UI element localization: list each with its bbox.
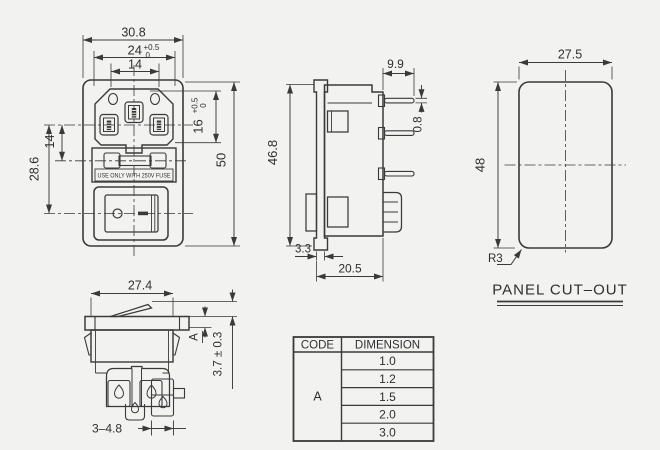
table-value-cell: 1.0: [379, 354, 396, 368]
svg-text:0: 0: [146, 51, 151, 60]
side-view: 46.8 9.9 0.8 3.3 20.5: [265, 57, 427, 282]
table-value-cell: 2.0: [379, 408, 396, 422]
dim-side-depth: 20.5: [317, 238, 384, 282]
cutout-title: PANEL CUT–OUT: [492, 282, 628, 306]
table-header-code: CODE: [301, 340, 335, 352]
switch-body-side: [328, 197, 349, 227]
svg-text:48: 48: [473, 158, 488, 172]
svg-text:R3: R3: [488, 253, 503, 265]
side-terminal-tab: [174, 389, 185, 399]
dim-switch-terminal: 3–4.8: [92, 421, 186, 436]
svg-text:50: 50: [214, 153, 229, 167]
fuse-warning-text: USE ONLY WITH 250V FUSE: [98, 173, 171, 180]
svg-text:14: 14: [128, 58, 142, 72]
panel-cutout-view: 27.5 48 R3 PANEL CUT–OUT: [473, 48, 628, 306]
svg-text:24: 24: [128, 43, 142, 58]
spec-table: CODE DIMENSION A 1.0 1.2 1.5 2.0 3.0: [294, 337, 434, 441]
technical-drawing-sheet: USE ONLY WITH 250V FUSE 30.8 24 +0.5 0: [0, 0, 660, 450]
front-view: USE ONLY WITH 250V FUSE 30.8 24 +0.5 0: [28, 26, 241, 258]
rear-terminal-block: [383, 193, 402, 233]
side-view-body: [325, 85, 384, 236]
svg-text:20.5: 20.5: [338, 262, 362, 276]
svg-text:14: 14: [43, 135, 57, 149]
rocker-actuator: [111, 305, 152, 317]
dim-side-height: 46.8: [265, 85, 314, 247]
table-value-cell: 1.2: [379, 372, 396, 386]
dim-side-pin-thickness: 0.8: [413, 85, 428, 133]
corner-radius-callout: R3: [488, 250, 522, 266]
svg-text:28.6: 28.6: [28, 157, 42, 181]
table-value-cell: 3.0: [379, 425, 396, 439]
dim-side-pin-length: 9.9: [383, 57, 414, 96]
svg-text:PANEL CUT–OUT: PANEL CUT–OUT: [492, 282, 628, 299]
switch-bezel-side: [306, 194, 317, 231]
switch-on-mark: [138, 212, 148, 216]
switch-bezel: [85, 317, 189, 331]
mounting-latch: [173, 333, 180, 355]
svg-text:0: 0: [199, 103, 208, 108]
drawing-canvas: USE ONLY WITH 250V FUSE 30.8 24 +0.5 0: [0, 0, 660, 450]
line-pin: [100, 115, 118, 136]
svg-text:3.3: 3.3: [295, 244, 311, 256]
ground-pin: [125, 102, 143, 123]
svg-text:3.7 ± 0.3: 3.7 ± 0.3: [213, 332, 225, 377]
terminal-pin: [385, 131, 415, 136]
svg-text:27.5: 27.5: [558, 48, 582, 62]
dim-switch-code-a: A: [189, 307, 212, 344]
svg-text:27.4: 27.4: [128, 279, 152, 293]
dim-front-pin-pitch: 14: [111, 58, 159, 88]
svg-text:A: A: [189, 333, 201, 341]
terminal-pin: [385, 98, 415, 103]
fuse-drawer-side: [328, 111, 349, 132]
switch-view: 27.4 A 3.7 ± 0.3 3–4.8: [85, 279, 238, 436]
svg-text:0.8: 0.8: [413, 117, 425, 133]
switch-housing: [91, 330, 173, 362]
table-code-cell: A: [313, 390, 322, 404]
terminal-hole: [132, 403, 139, 413]
table-header-dimension: DIMENSION: [355, 340, 420, 352]
svg-text:9.9: 9.9: [387, 57, 404, 71]
inlet-vent-hole: [109, 94, 118, 105]
svg-text:46.8: 46.8: [265, 140, 280, 165]
mounting-latch: [85, 333, 92, 355]
dim-front-pin-to-fuse: 14: [43, 125, 62, 161]
inlet-vent-hole: [151, 94, 160, 105]
table-value-cell: 1.5: [379, 390, 396, 404]
svg-text:30.8: 30.8: [121, 26, 145, 40]
terminal-hole: [115, 385, 124, 398]
dim-side-flange-thickness: 3.3: [295, 244, 343, 261]
terminal-pin: [385, 171, 415, 176]
svg-text:3–4.8: 3–4.8: [92, 422, 122, 436]
svg-text:16: 16: [191, 119, 206, 133]
